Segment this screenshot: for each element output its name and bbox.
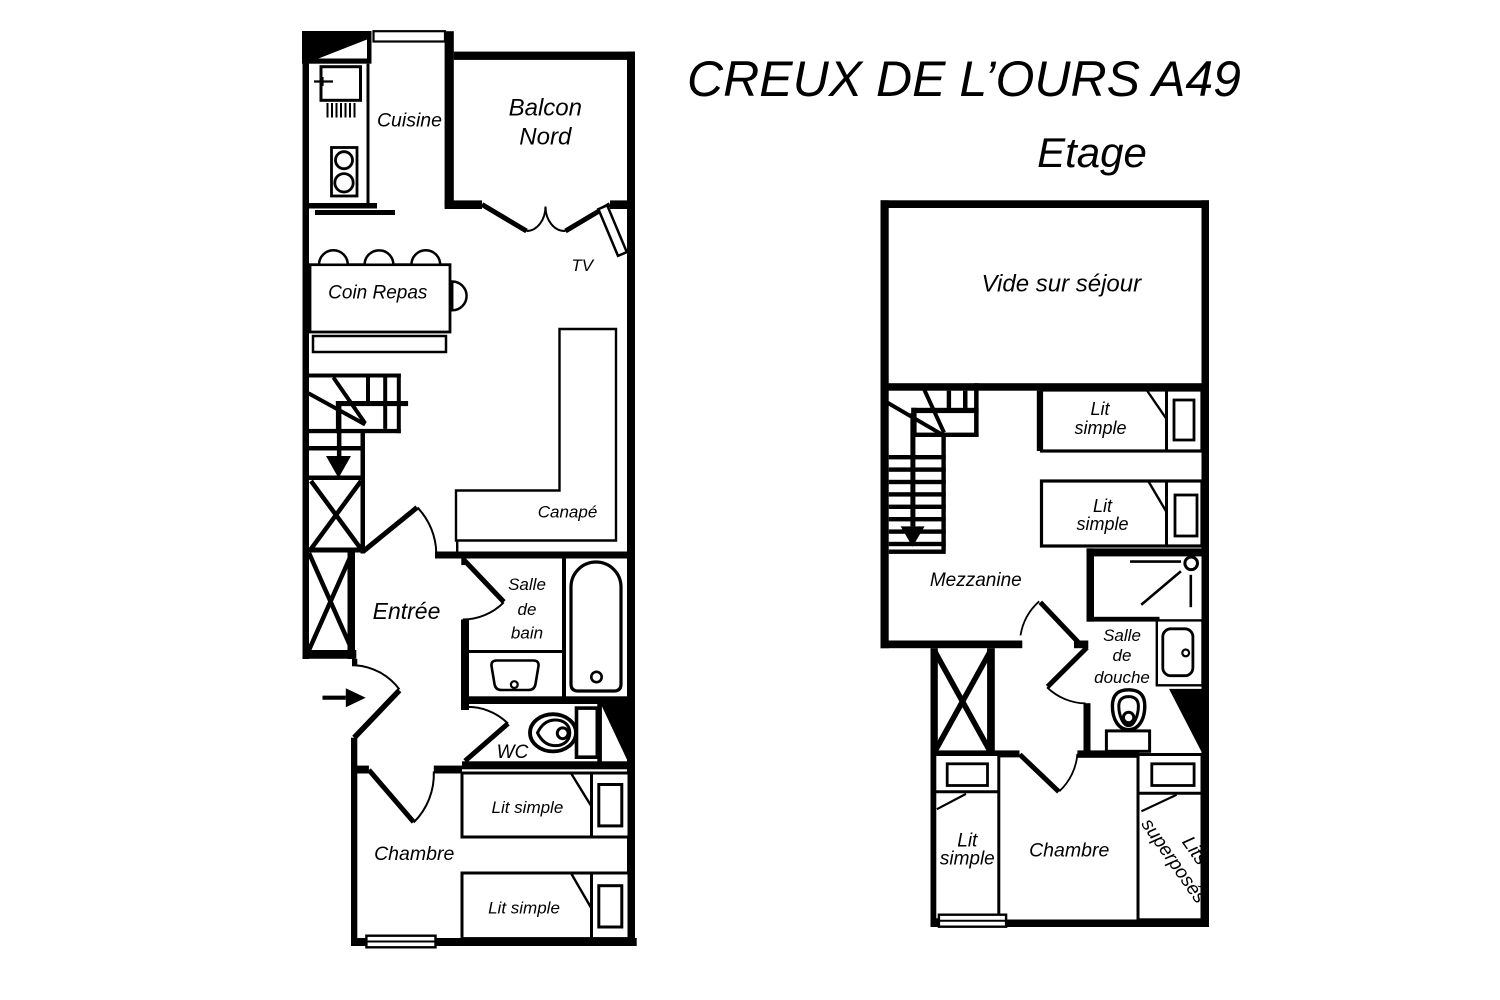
svg-text:WC: WC — [497, 742, 529, 763]
svg-text:Canapé: Canapé — [538, 502, 598, 521]
svg-text:Chambre: Chambre — [374, 843, 454, 865]
svg-text:bain: bain — [511, 624, 543, 643]
svg-text:douche: douche — [1094, 668, 1150, 687]
svg-text:Salle: Salle — [508, 575, 546, 594]
svg-text:Entrée: Entrée — [373, 598, 441, 624]
svg-text:Vide sur séjour: Vide sur séjour — [981, 271, 1142, 298]
svg-text:Chambre: Chambre — [1029, 840, 1109, 862]
svg-text:Lit simple: Lit simple — [491, 798, 563, 817]
svg-text:simple: simple — [1074, 418, 1126, 438]
svg-text:TV: TV — [571, 256, 594, 275]
svg-text:Cuisine: Cuisine — [377, 110, 442, 132]
svg-text:Salle: Salle — [1103, 626, 1141, 645]
svg-text:Coin Repas: Coin Repas — [328, 283, 428, 304]
svg-text:simple: simple — [940, 849, 995, 870]
svg-text:Nord: Nord — [519, 123, 572, 150]
svg-text:Balcon: Balcon — [509, 95, 582, 122]
svg-text:de: de — [518, 600, 537, 619]
svg-text:Lit: Lit — [1090, 399, 1110, 419]
svg-text:simple: simple — [1076, 514, 1128, 534]
svg-text:de: de — [1113, 646, 1132, 665]
svg-text:CREUX DE L’OURS A49: CREUX DE L’OURS A49 — [687, 51, 1241, 107]
svg-text:Lit simple: Lit simple — [488, 898, 560, 917]
svg-text:Lit: Lit — [1093, 496, 1113, 516]
svg-text:Etage: Etage — [1037, 129, 1147, 176]
svg-text:Mezzanine: Mezzanine — [930, 570, 1022, 591]
